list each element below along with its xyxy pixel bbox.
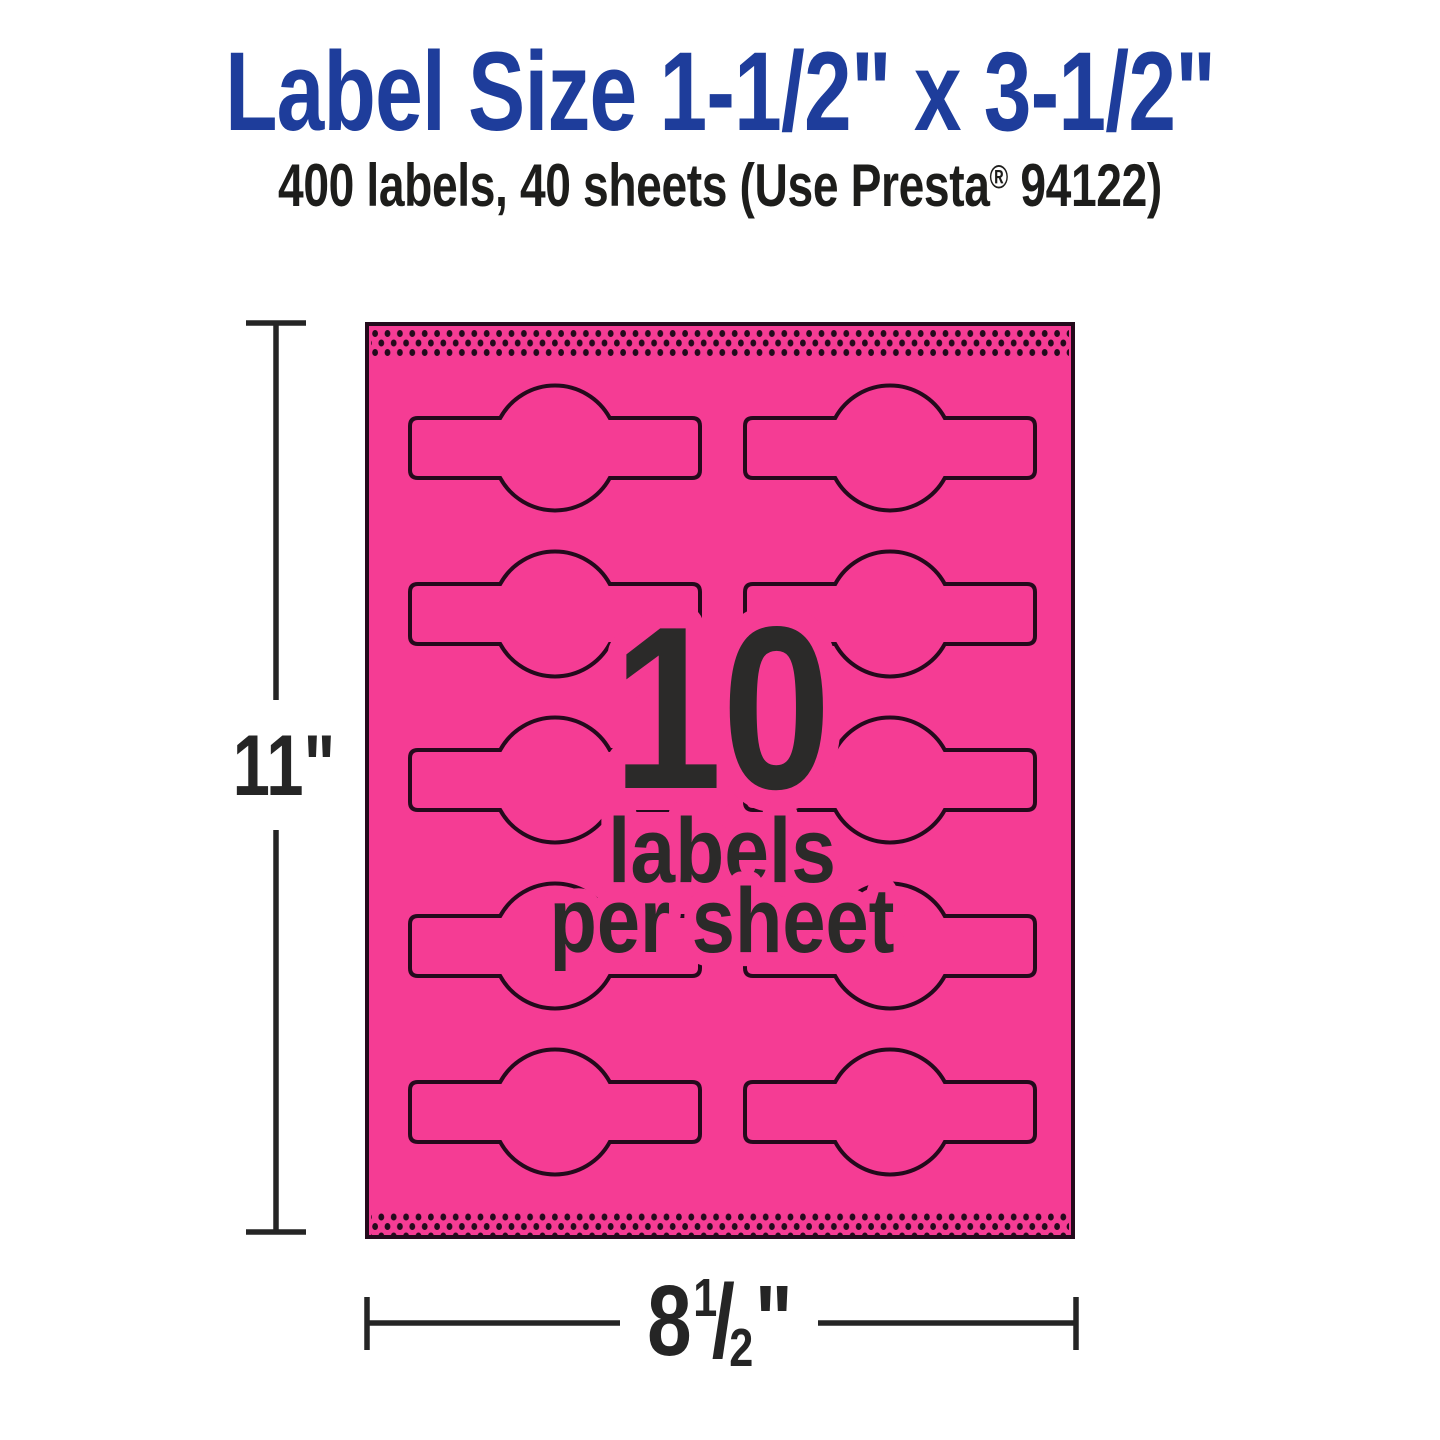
diagram-canvas: Label Size 1-1/2" x 3-1/2" 400 labels, 4… xyxy=(0,0,1440,1440)
width-fraction-denominator: 2 xyxy=(729,1321,753,1375)
width-fraction-numerator: 1 xyxy=(693,1271,717,1325)
width-whole-number: 8 xyxy=(647,1271,692,1371)
labels-caption-line2: per sheet xyxy=(550,870,895,972)
width-fraction: 1 / 2 xyxy=(693,1275,753,1371)
width-dimension-label: 8 1 / 2 " xyxy=(647,1271,793,1371)
label-sheet-diagram: 10 labels per sheet xyxy=(0,0,1440,1440)
perforation-dots-top xyxy=(371,329,1069,357)
perforation-dots-bottom xyxy=(371,1213,1069,1239)
height-dimension-label: 11" xyxy=(222,723,347,809)
width-unit-inches: " xyxy=(755,1271,793,1371)
